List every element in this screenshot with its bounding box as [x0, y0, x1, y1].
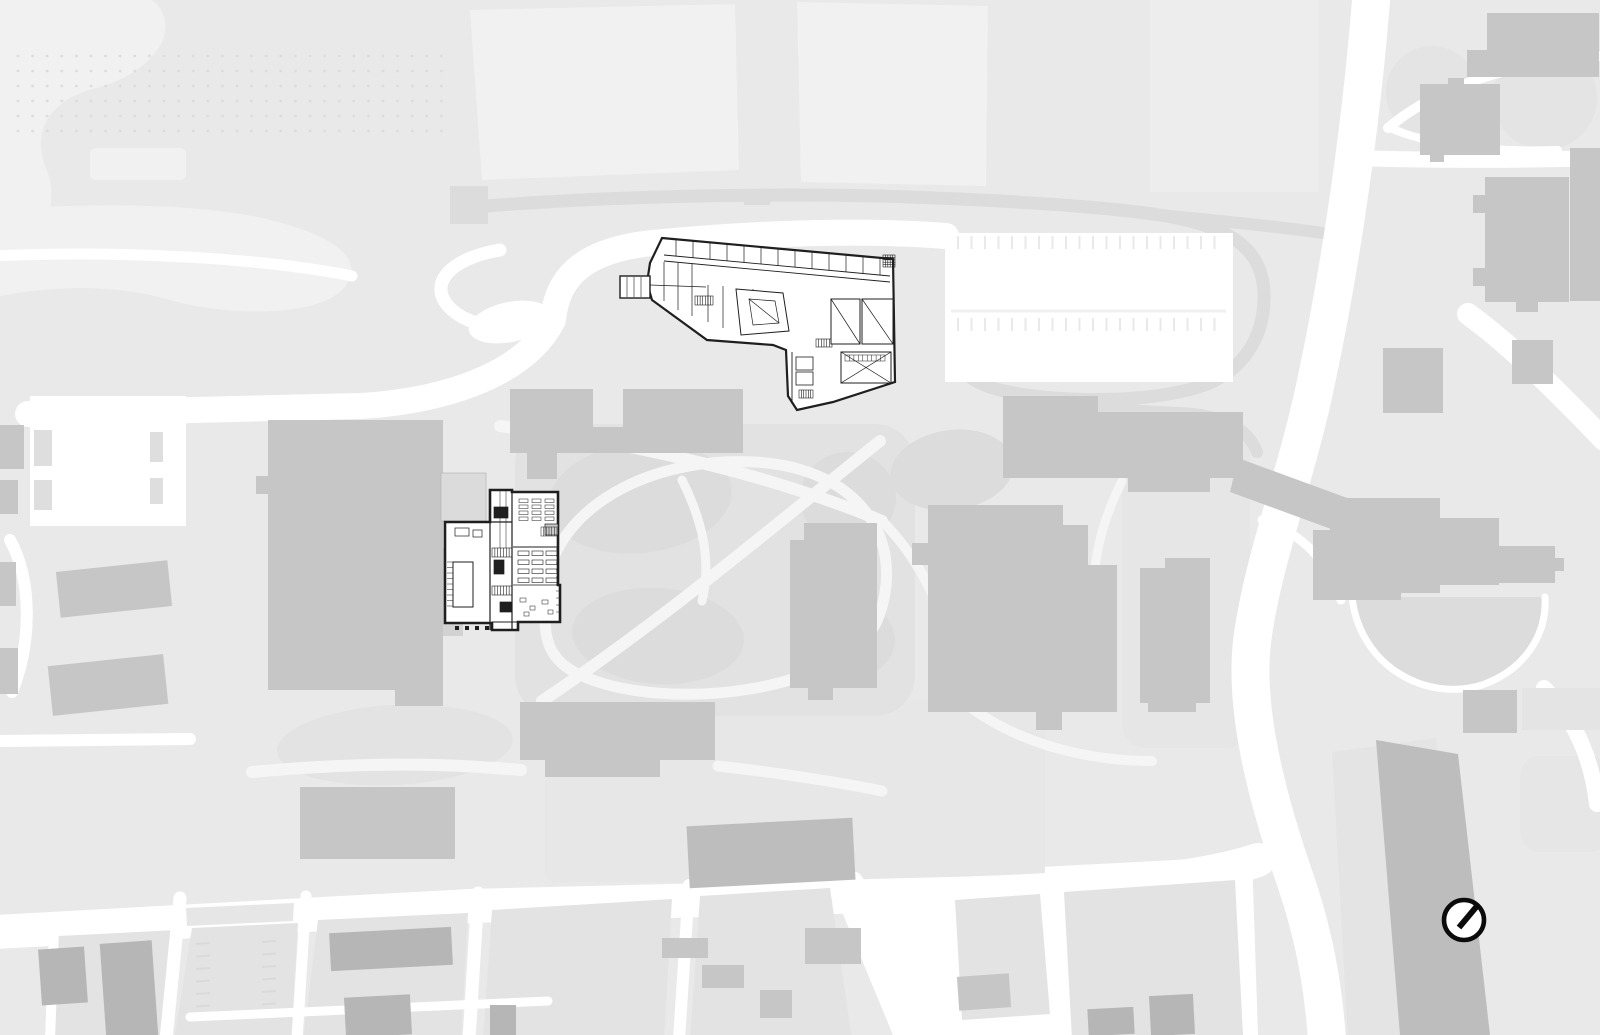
orchard-dots-shape: [119, 115, 122, 118]
orchard-dots-shape: [46, 115, 49, 118]
orchard-dots-shape: [309, 100, 312, 103]
orchard-dots-shape: [192, 70, 195, 73]
orchard-dots-shape: [411, 85, 414, 88]
fields-shape: [1150, 0, 1318, 192]
orchard-dots-shape: [104, 130, 107, 133]
buildings-shape: [1148, 703, 1196, 712]
orchard-dots-shape: [323, 70, 326, 73]
orchard-dots-shape: [396, 115, 399, 118]
orchard-dots-shape: [236, 115, 239, 118]
floor-plan-west-shape: [485, 626, 489, 630]
orchard-dots-shape: [75, 55, 78, 58]
orchard-dots-shape: [279, 100, 282, 103]
orchard-dots-shape: [192, 100, 195, 103]
orchard-dots-shape: [206, 130, 209, 133]
orchard-dots-shape: [367, 130, 370, 133]
orchard-dots-shape: [309, 70, 312, 73]
orchard-dots-shape: [294, 70, 297, 73]
orchard-dots-shape: [17, 85, 20, 88]
orchard-dots-shape: [294, 115, 297, 118]
orchard-dots-shape: [338, 85, 341, 88]
floor-plan-west-shape: [465, 626, 469, 630]
orchard-dots-shape: [294, 130, 297, 133]
buildings-dark-shape: [1149, 994, 1195, 1035]
orchard-dots-shape: [90, 85, 93, 88]
floor-plan-north-shape: [736, 289, 789, 335]
orchard-dots-shape: [396, 55, 399, 58]
buildings-shape: [0, 562, 16, 606]
orchard-dots-shape: [352, 115, 355, 118]
buildings-shape: [0, 648, 18, 694]
site-plan-map: [0, 0, 1600, 1035]
building: [268, 420, 443, 690]
orchard-dots-shape: [104, 100, 107, 103]
orchard-dots-shape: [206, 100, 209, 103]
orchard-dots-shape: [221, 55, 224, 58]
roads-white-shape: [34, 430, 52, 466]
roads-white-shape: [0, 739, 190, 741]
orchard-dots-shape: [206, 70, 209, 73]
buildings-shape: [0, 480, 18, 514]
buildings-shape: [1463, 690, 1517, 733]
orchard-dots-shape: [75, 70, 78, 73]
orchard-dots-shape: [425, 70, 428, 73]
roads-white-shape: [150, 478, 163, 504]
orchard-dots-shape: [265, 115, 268, 118]
streets-shape: [196, 1006, 210, 1007]
orchard-dots-shape: [133, 85, 136, 88]
fields-shape: [90, 148, 186, 180]
orchard-dots-shape: [367, 70, 370, 73]
orchard-dots-shape: [338, 115, 341, 118]
orchard-dots-shape: [382, 130, 385, 133]
buildings-shape: [1420, 84, 1500, 155]
buildings-shape: [1555, 558, 1564, 571]
orchard-dots-shape: [382, 115, 385, 118]
floor-plan-west-shape: [441, 473, 486, 521]
roads-white-shape: [150, 432, 163, 462]
orchard-dots-shape: [382, 100, 385, 103]
streets-shape: [262, 1004, 276, 1005]
orchard-dots-shape: [309, 130, 312, 133]
orchard-dots-shape: [250, 85, 253, 88]
floor-plan-west-shape: [475, 626, 479, 630]
building: [912, 505, 1117, 730]
orchard-dots-shape: [133, 100, 136, 103]
orchard-dots-shape: [294, 55, 297, 58]
fields-shape: [797, 2, 988, 186]
orchard-dots-shape: [425, 85, 428, 88]
orchard-dots-shape: [338, 70, 341, 73]
buildings-shape: [1497, 546, 1555, 583]
buildings-dark-shape: [38, 946, 88, 1005]
orchard-dots-shape: [352, 100, 355, 103]
orchard-dots-shape: [236, 100, 239, 103]
orchard-dots-shape: [148, 85, 151, 88]
buildings-shape: [256, 476, 268, 494]
orchard-dots-shape: [177, 55, 180, 58]
orchard-dots-shape: [352, 55, 355, 58]
orchard-dots-shape: [31, 100, 34, 103]
orchard-dots-shape: [309, 55, 312, 58]
orchard-dots-shape: [104, 70, 107, 73]
orchard-dots-shape: [90, 55, 93, 58]
orchard-dots-shape: [411, 70, 414, 73]
north-compass: [1444, 900, 1484, 940]
orchard-dots-shape: [90, 70, 93, 73]
buildings-shape: [1383, 348, 1443, 413]
orchard-dots-shape: [309, 115, 312, 118]
buildings-shape: [1473, 195, 1485, 213]
orchard-dots-shape: [75, 130, 78, 133]
orchard-dots-shape: [396, 85, 399, 88]
orchard-dots-shape: [163, 55, 166, 58]
buildings-dark-shape: [1087, 1007, 1134, 1035]
orchard-dots-shape: [119, 55, 122, 58]
orchard-dots-shape: [90, 100, 93, 103]
orchard-dots-shape: [90, 115, 93, 118]
orchard-dots-shape: [46, 85, 49, 88]
orchard-dots-shape: [221, 100, 224, 103]
orchard-dots-shape: [425, 115, 428, 118]
orchard-dots-shape: [440, 55, 443, 58]
orchard-dots-shape: [367, 55, 370, 58]
buildings-dark-shape: [329, 927, 453, 971]
orchard-dots-shape: [382, 85, 385, 88]
orchard-dots-shape: [221, 115, 224, 118]
orchard-dots-shape: [323, 55, 326, 58]
orchard-dots-shape: [411, 115, 414, 118]
orchard-dots-shape: [31, 115, 34, 118]
orchard-dots-shape: [60, 130, 63, 133]
orchard-dots-shape: [177, 115, 180, 118]
building: [790, 523, 877, 700]
orchard-dots-shape: [192, 85, 195, 88]
orchard-dots-shape: [31, 130, 34, 133]
orchard-dots-shape: [133, 115, 136, 118]
streets-shape: [262, 979, 276, 980]
orchard-dots-shape: [265, 85, 268, 88]
orchard-dots-shape: [133, 70, 136, 73]
orchard-dots-shape: [17, 130, 20, 133]
orchard-dots-shape: [221, 70, 224, 73]
orchard-dots-shape: [309, 85, 312, 88]
orchard-dots-shape: [425, 130, 428, 133]
buildings-shape: [1430, 155, 1444, 162]
orchard-dots-shape: [90, 130, 93, 133]
streets-shape: [262, 941, 276, 942]
streets-shape: [262, 954, 276, 955]
roads-white-shape: [34, 480, 52, 510]
floor-plan-west: [441, 473, 560, 630]
orchard-dots-shape: [148, 130, 151, 133]
orchard-dots-shape: [367, 85, 370, 88]
orchard-dots-shape: [411, 100, 414, 103]
orchard-dots-shape: [119, 130, 122, 133]
orchard-dots-shape: [279, 55, 282, 58]
orchard-dots-shape: [323, 100, 326, 103]
orchard-dots-shape: [60, 115, 63, 118]
orchard-dots-shape: [425, 100, 428, 103]
orchard-dots-shape: [440, 130, 443, 133]
buildings-shape: [805, 928, 861, 964]
orchard-dots-shape: [133, 130, 136, 133]
orchard-dots-shape: [46, 70, 49, 73]
orchard-dots-shape: [206, 85, 209, 88]
buildings-shape: [0, 425, 24, 469]
orchard-dots-shape: [133, 55, 136, 58]
buildings-shape: [760, 990, 792, 1018]
buildings-shape: [1487, 13, 1599, 77]
floor-plan-west-shape: [500, 602, 512, 612]
orchard-dots-shape: [221, 85, 224, 88]
buildings-shape: [1165, 558, 1210, 568]
orchard-dots-shape: [60, 70, 63, 73]
orchard-dots-shape: [177, 100, 180, 103]
site-plan-canvas: [0, 0, 1600, 1035]
buildings-shape: [1448, 78, 1464, 85]
orchard-dots-shape: [367, 100, 370, 103]
streets-shape: [196, 993, 210, 994]
orchard-dots-shape: [236, 130, 239, 133]
floor-plan-west-shape: [455, 626, 459, 630]
parcels-shape: [1522, 688, 1600, 730]
buildings-shape: [300, 787, 455, 859]
orchard-dots-shape: [148, 100, 151, 103]
orchard-dots-shape: [323, 130, 326, 133]
orchard-dots-shape: [17, 55, 20, 58]
orchard-dots-shape: [265, 100, 268, 103]
orchard-dots-shape: [119, 70, 122, 73]
orchard-dots-shape: [425, 55, 428, 58]
buildings-dark-shape: [490, 1005, 516, 1035]
buildings-shape: [1570, 148, 1600, 301]
orchard-dots-shape: [294, 85, 297, 88]
orchard-dots-shape: [60, 100, 63, 103]
orchard-dots-shape: [206, 115, 209, 118]
orchard-dots-shape: [119, 100, 122, 103]
buildings-dark-shape: [344, 994, 412, 1035]
orchard-dots-shape: [75, 115, 78, 118]
streets-shape: [262, 991, 276, 992]
orchard-dots-shape: [148, 55, 151, 58]
orchard-dots-shape: [411, 55, 414, 58]
orchard-dots-shape: [148, 70, 151, 73]
buildings-shape: [702, 965, 744, 988]
orchard-dots-shape: [294, 100, 297, 103]
orchard-dots-shape: [104, 55, 107, 58]
buildings-shape: [1437, 518, 1499, 585]
streets-shape: [262, 966, 276, 967]
orchard-dots-shape: [163, 100, 166, 103]
orchard-dots-shape: [31, 55, 34, 58]
orchard-dots-shape: [352, 85, 355, 88]
orchard-dots-shape: [75, 85, 78, 88]
orchard-dots-shape: [192, 55, 195, 58]
orchard-dots-shape: [279, 70, 282, 73]
orchard-dots-shape: [279, 130, 282, 133]
streets-shape: [196, 981, 210, 982]
streets-shape: [469, 893, 478, 1035]
orchard-dots-shape: [17, 100, 20, 103]
orchard-dots-shape: [323, 115, 326, 118]
orchard-dots-shape: [192, 115, 195, 118]
buildings-shape: [1512, 340, 1553, 384]
orchard-dots-shape: [148, 115, 151, 118]
orchard-dots-shape: [60, 55, 63, 58]
orchard-dots-shape: [46, 130, 49, 133]
orchard-dots-shape: [250, 130, 253, 133]
orchard-dots-shape: [265, 55, 268, 58]
orchard-dots-shape: [440, 70, 443, 73]
buildings-shape: [957, 973, 1011, 1011]
orchard-dots-shape: [236, 70, 239, 73]
buildings-dark-shape: [100, 940, 159, 1035]
orchard-dots-shape: [338, 55, 341, 58]
orchard-dots-shape: [250, 115, 253, 118]
orchard-dots-shape: [396, 100, 399, 103]
orchard-dots-shape: [177, 130, 180, 133]
orchard-dots-shape: [338, 130, 341, 133]
orchard-dots-shape: [192, 130, 195, 133]
orchard-dots-shape: [352, 130, 355, 133]
fields-shape: [470, 4, 739, 180]
orchard-dots-shape: [104, 115, 107, 118]
floor-plan-north-shape: [620, 276, 650, 298]
orchard-dots-shape: [352, 70, 355, 73]
orchard-dots-shape: [177, 70, 180, 73]
buildings-shape: [1516, 302, 1538, 312]
orchard-dots-shape: [279, 85, 282, 88]
orchard-dots-shape: [60, 85, 63, 88]
orchard-dots-shape: [279, 115, 282, 118]
orchard-dots-shape: [236, 85, 239, 88]
parking-lot-north: [945, 233, 1233, 382]
orchard-dots-shape: [265, 70, 268, 73]
orchard-dots-shape: [119, 85, 122, 88]
orchard-dots-shape: [31, 85, 34, 88]
orchard-dots-shape: [250, 70, 253, 73]
buildings-dark-shape: [686, 818, 855, 889]
orchard-dots-shape: [250, 55, 253, 58]
orchard-dots-shape: [206, 55, 209, 58]
orchard-dots-shape: [163, 130, 166, 133]
orchard-dots-shape: [46, 100, 49, 103]
orchard-dots-shape: [382, 55, 385, 58]
streets-shape: [196, 943, 210, 944]
orchard-dots-shape: [221, 130, 224, 133]
orchard-dots-shape: [163, 115, 166, 118]
buildings-shape: [662, 938, 708, 958]
streets-shape: [196, 956, 210, 957]
orchard-dots-shape: [440, 115, 443, 118]
orchard-dots-shape: [396, 70, 399, 73]
orchard-dots-shape: [177, 85, 180, 88]
roads-white-shape: [1352, 158, 1600, 160]
buildings-shape: [1140, 568, 1210, 703]
orchard-dots-shape: [250, 100, 253, 103]
orchard-dots-shape: [17, 115, 20, 118]
orchard-dots-shape: [236, 55, 239, 58]
orchard-dots-shape: [338, 100, 341, 103]
buildings-shape: [1485, 177, 1569, 302]
orchard-dots-shape: [163, 85, 166, 88]
orchard-dots-shape: [367, 115, 370, 118]
buildings-shape: [1467, 50, 1487, 77]
orchard-dots-shape: [163, 70, 166, 73]
orchard-dots-shape: [31, 70, 34, 73]
buildings-shape: [395, 688, 443, 706]
buildings-shape: [1473, 268, 1485, 286]
orchard-dots-shape: [265, 130, 268, 133]
orchard-dots-shape: [411, 130, 414, 133]
orchard-dots-shape: [323, 85, 326, 88]
orchard-dots-shape: [75, 100, 78, 103]
orchard-dots-shape: [396, 130, 399, 133]
orchard-dots-shape: [46, 55, 49, 58]
orchard-dots-shape: [440, 100, 443, 103]
orchard-dots-shape: [104, 85, 107, 88]
orchard-dots-shape: [382, 70, 385, 73]
orchard-dots-shape: [440, 85, 443, 88]
orchard-dots-shape: [17, 70, 20, 73]
floor-plan-west-shape: [494, 560, 504, 574]
buildings-shape: [1330, 498, 1440, 593]
streets-shape: [196, 968, 210, 969]
